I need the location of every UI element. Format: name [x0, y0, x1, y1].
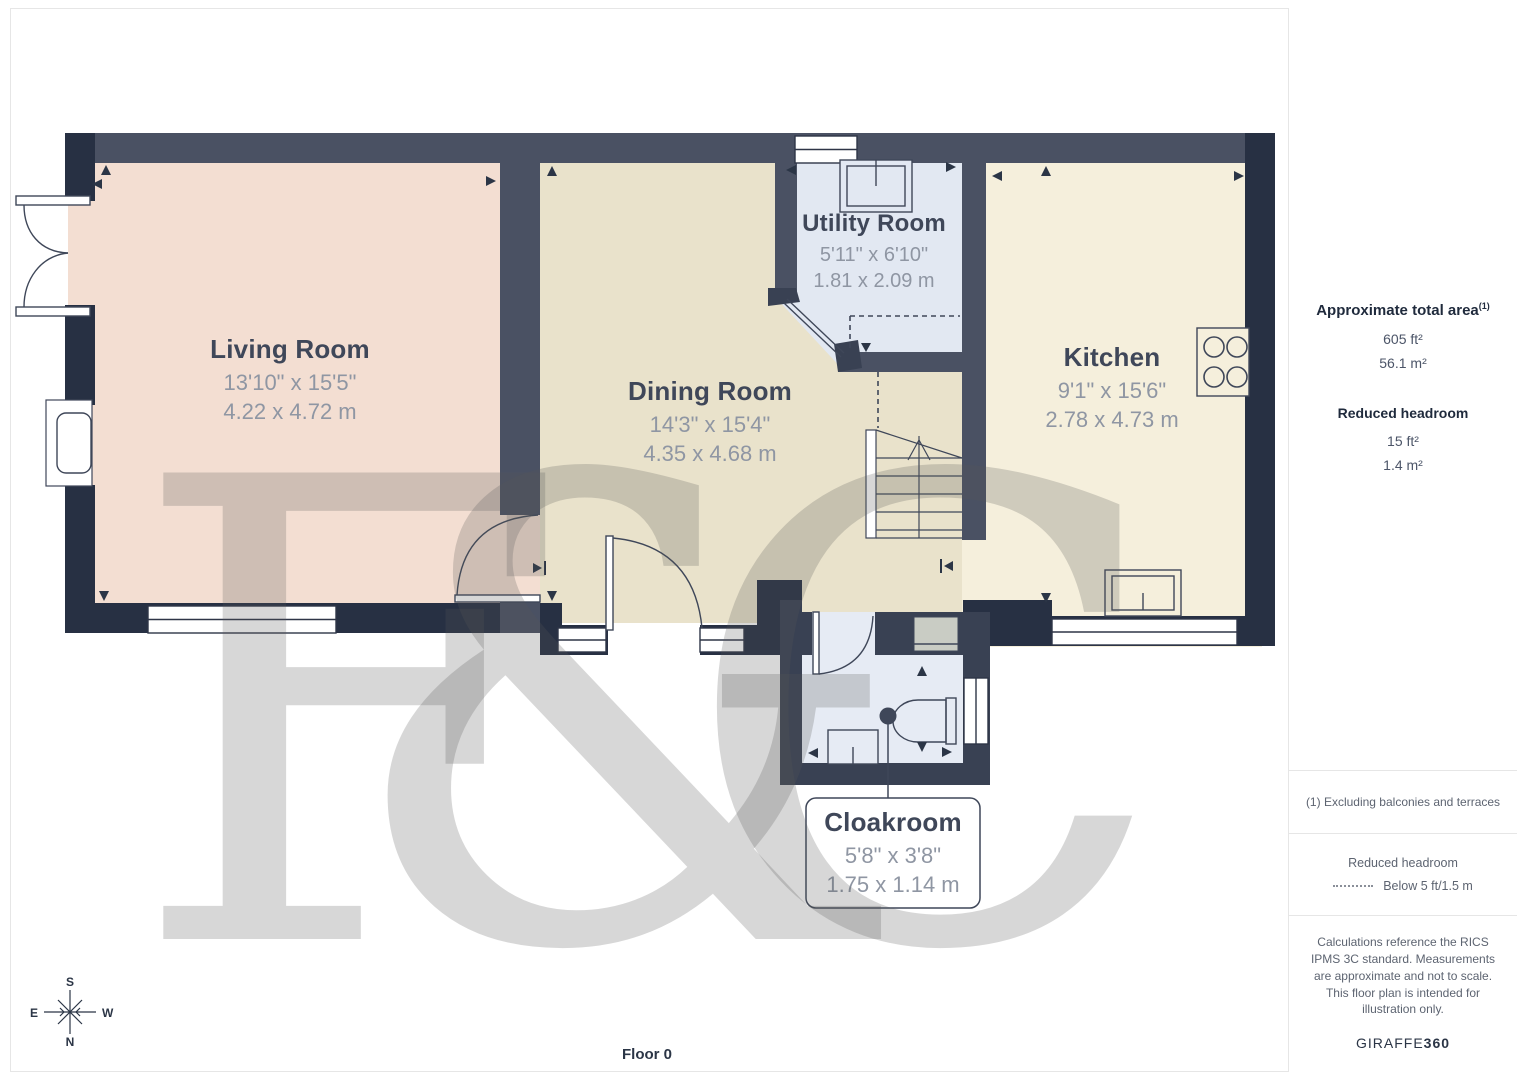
footnote-text: (1) Excluding balconies and terraces: [1306, 795, 1500, 809]
legend-label: Below 5 ft/1.5 m: [1383, 879, 1473, 893]
window: [795, 136, 857, 163]
room-label-living-room: Living Room 13'10" x 15'5" 4.22 x 4.72 m: [210, 334, 370, 426]
cloakroom-sink: [828, 730, 878, 764]
room-label-kitchen: Kitchen 9'1" x 15'6" 2.78 x 4.73 m: [1045, 342, 1178, 434]
room-name: Cloakroom: [824, 807, 962, 838]
room-dims-imperial: 13'10" x 15'5": [210, 369, 370, 398]
compass-e: E: [30, 1006, 38, 1020]
room-dims-imperial: 9'1" x 15'6": [1045, 377, 1178, 406]
window: [558, 628, 606, 652]
utility-sink: [840, 160, 912, 212]
fireplace: [46, 400, 92, 486]
room-dims-metric: 1.81 x 2.09 m: [802, 268, 946, 294]
brand-name: GIRAFFE: [1356, 1035, 1424, 1051]
room-dims-imperial: 14'3" x 15'4": [628, 411, 792, 440]
window: [148, 606, 336, 633]
floorplan-page: S E W N Living Room 13'10" x 15'5" 4.22 …: [0, 0, 1527, 1080]
total-area-m: 56.1 m²: [1289, 351, 1517, 375]
window: [700, 628, 744, 652]
total-area-section: Approximate total area(1) 605 ft² 56.1 m…: [1289, 8, 1517, 770]
brand-logo: GIRAFFE360: [1356, 1034, 1450, 1054]
room-dims-metric: 2.78 x 4.73 m: [1045, 406, 1178, 435]
room-name: Living Room: [210, 334, 370, 365]
room-name: Kitchen: [1045, 342, 1178, 373]
room-dims-imperial: 5'11" x 6'10": [802, 242, 946, 268]
room-label-dining-room: Dining Room 14'3" x 15'4" 4.35 x 4.68 m: [628, 376, 792, 468]
disclaimer-section: Calculations reference the RICS IPMS 3C …: [1289, 915, 1517, 1072]
compass-n: N: [66, 1035, 75, 1049]
floor-plan: S E W N Living Room 13'10" x 15'5" 4.22 …: [0, 0, 1288, 1080]
reduced-headroom-ft: 15 ft²: [1289, 429, 1517, 453]
room-label-utility-room: Utility Room 5'11" x 6'10" 1.81 x 2.09 m: [802, 210, 946, 294]
disclaimer-text: Calculations reference the RICS IPMS 3C …: [1305, 934, 1501, 1018]
reduced-headroom-m: 1.4 m²: [1289, 453, 1517, 477]
kitchen-sink: [1105, 570, 1181, 616]
cloakroom-floor: [800, 640, 965, 765]
compass-w: W: [102, 1006, 114, 1020]
floor-label: Floor 0: [622, 1046, 672, 1063]
floor-plan-svg: S E W N: [0, 0, 1288, 1080]
room-dims-imperial: 5'8" x 3'8": [824, 842, 962, 871]
storage-unit: [914, 617, 958, 651]
footnote-section: (1) Excluding balconies and terraces: [1289, 770, 1517, 833]
room-dims-metric: 4.22 x 4.72 m: [210, 398, 370, 427]
compass-s: S: [66, 975, 74, 989]
brand-suffix: 360: [1424, 1035, 1450, 1051]
legend-heading: Reduced headroom: [1348, 856, 1458, 870]
legend-section: Reduced headroom Below 5 ft/1.5 m: [1289, 833, 1517, 915]
compass: S E W N: [30, 975, 114, 1049]
total-area-heading: Approximate total area(1): [1289, 301, 1517, 319]
info-sidebar: Approximate total area(1) 605 ft² 56.1 m…: [1288, 8, 1517, 1072]
reduced-headroom-heading: Reduced headroom: [1289, 405, 1517, 421]
window: [1052, 619, 1237, 645]
room-name: Dining Room: [628, 376, 792, 407]
total-area-heading-text: Approximate total area: [1316, 302, 1479, 319]
window: [964, 678, 988, 744]
room-label-cloakroom: Cloakroom 5'8" x 3'8" 1.75 x 1.14 m: [824, 807, 962, 899]
cloakroom-door-gap: [812, 612, 875, 657]
room-dims-metric: 4.35 x 4.68 m: [628, 440, 792, 469]
stove: [1197, 328, 1249, 396]
reduced-headroom-dotted-line-sample: [1333, 885, 1373, 887]
room-name: Utility Room: [802, 210, 946, 238]
total-area-ft: 605 ft²: [1289, 327, 1517, 351]
room-dims-metric: 1.75 x 1.14 m: [824, 871, 962, 900]
footnote-marker: (1): [1479, 301, 1490, 311]
